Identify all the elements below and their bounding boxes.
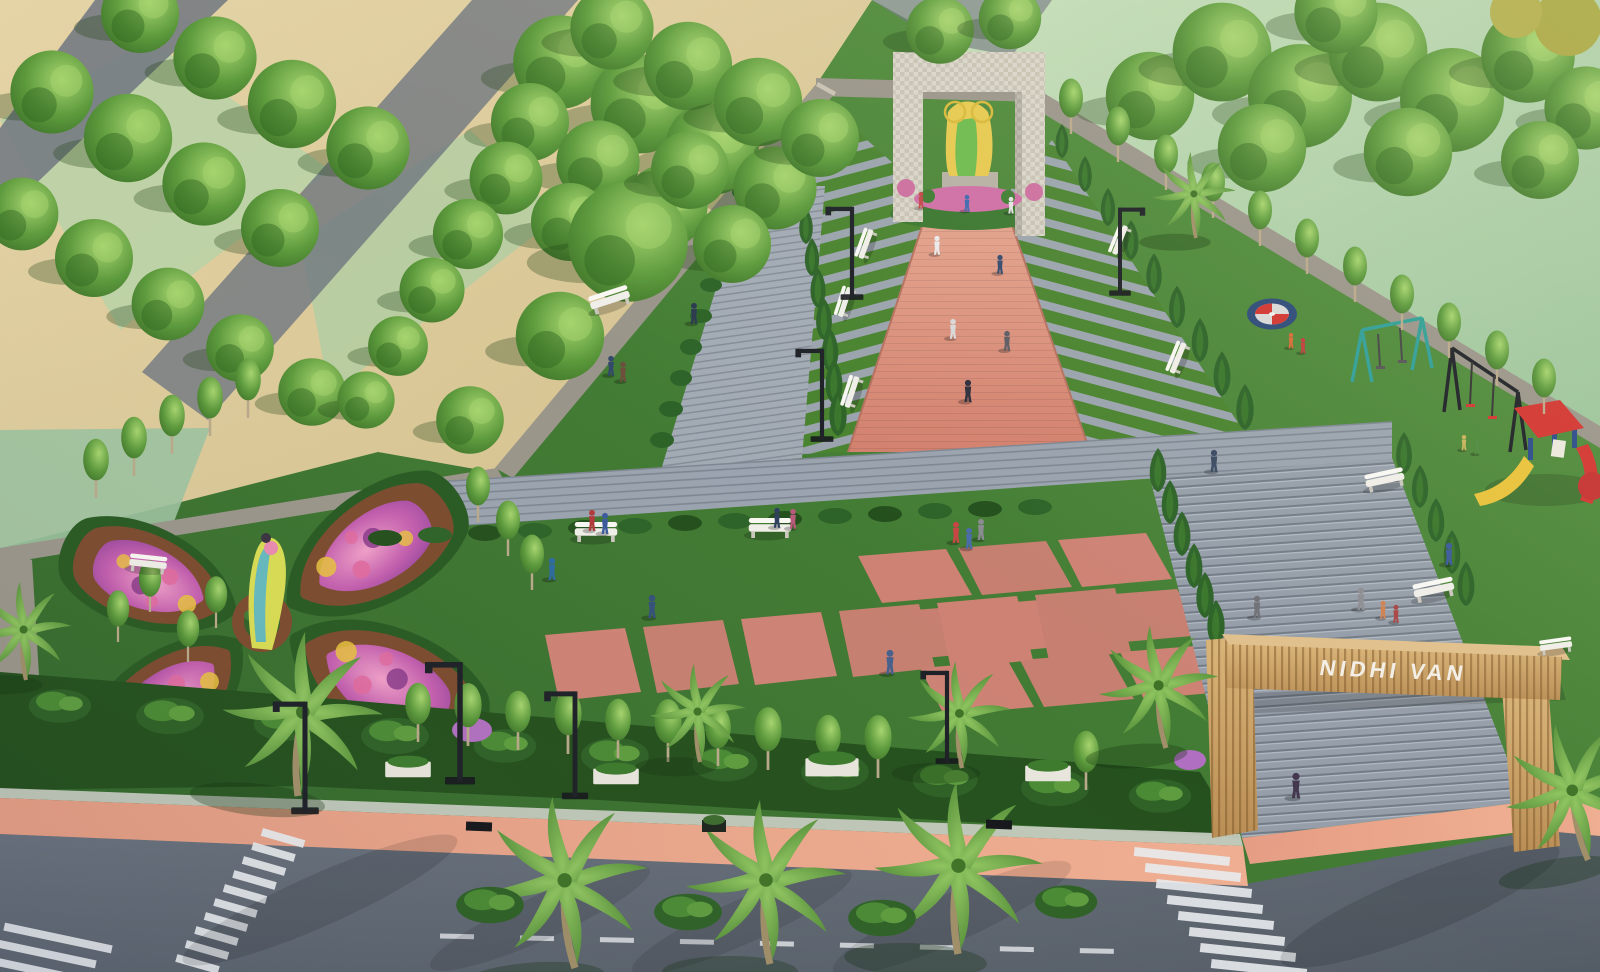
park-render: NIDHI VAN: [0, 0, 1600, 972]
park-render-stage: NIDHI VAN: [0, 0, 1600, 972]
light-overlay: [0, 0, 1600, 972]
